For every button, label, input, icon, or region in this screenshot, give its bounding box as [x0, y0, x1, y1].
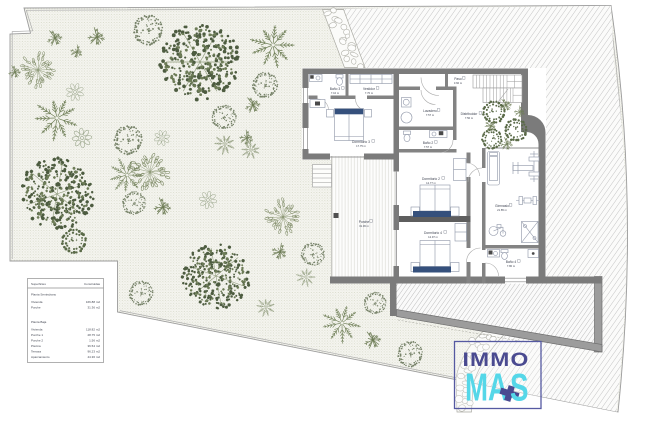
svg-text:Porche 1: Porche 1: [31, 333, 43, 337]
svg-text:31.36 m2: 31.36 m2: [87, 306, 100, 310]
svg-text:Construidas: Construidas: [84, 282, 101, 286]
svg-text:Vivienda: Vivienda: [31, 328, 43, 332]
svg-text:118.82 m2: 118.82 m2: [86, 328, 100, 332]
svg-text:1.56 m2: 1.56 m2: [89, 339, 100, 343]
svg-text:Superficies: Superficies: [31, 282, 46, 286]
svg-text:Porche 2: Porche 2: [31, 339, 43, 343]
svg-text:Baño 2: Baño 2: [423, 141, 434, 145]
svg-text:Dormitorio 3: Dormitorio 3: [352, 140, 370, 144]
svg-text:21.85 m: 21.85 m: [497, 208, 507, 212]
svg-text:17.75 m: 17.75 m: [356, 144, 366, 148]
svg-text:7.50 m: 7.50 m: [465, 116, 474, 120]
svg-text:7.57 m: 7.57 m: [426, 113, 435, 117]
svg-text:Baño 4: Baño 4: [506, 260, 517, 264]
svg-text:Dormitorio 4: Dormitorio 4: [424, 231, 442, 235]
svg-text:7.80 m: 7.80 m: [507, 264, 516, 268]
svg-text:36.54 m2: 36.54 m2: [87, 344, 100, 348]
svg-text:96.23 m2: 96.23 m2: [87, 350, 100, 354]
svg-text:Terraza: Terraza: [31, 350, 41, 354]
svg-text:Dormitorio 2: Dormitorio 2: [422, 177, 440, 181]
svg-text:S: S: [510, 367, 529, 410]
svg-text:Vestidor: Vestidor: [363, 87, 376, 91]
svg-text:Planta Semisótano: Planta Semisótano: [31, 293, 57, 297]
svg-text:3.60 m: 3.60 m: [454, 81, 463, 85]
svg-text:Aparcamiento: Aparcamiento: [31, 355, 50, 359]
svg-text:Piscina: Piscina: [31, 344, 41, 348]
svg-text:7.10 m: 7.10 m: [331, 91, 340, 95]
svg-text:166.88 m2: 166.88 m2: [86, 300, 101, 304]
svg-text:Porche: Porche: [31, 306, 41, 310]
svg-text:12.97 m: 12.97 m: [428, 235, 438, 239]
svg-text:7.57 m: 7.57 m: [424, 145, 433, 149]
svg-text:31.36 m: 31.36 m: [359, 224, 369, 228]
svg-text:Vivienda: Vivienda: [31, 300, 43, 304]
svg-text:Paso: Paso: [454, 77, 462, 81]
svg-text:44.36 m2: 44.36 m2: [87, 355, 100, 359]
svg-text:Porche: Porche: [359, 220, 370, 224]
svg-text:Lavadero: Lavadero: [423, 109, 437, 113]
svg-text:Gimnasio: Gimnasio: [495, 204, 509, 208]
svg-text:7.70 m: 7.70 m: [365, 91, 374, 95]
svg-text:Distribuidor: Distribuidor: [461, 112, 479, 116]
svg-text:28.75 m2: 28.75 m2: [87, 333, 100, 337]
svg-text:12.77 m: 12.77 m: [426, 181, 436, 185]
svg-text:Baño 3: Baño 3: [330, 87, 341, 91]
svg-text:Planta Baja: Planta Baja: [31, 320, 47, 324]
